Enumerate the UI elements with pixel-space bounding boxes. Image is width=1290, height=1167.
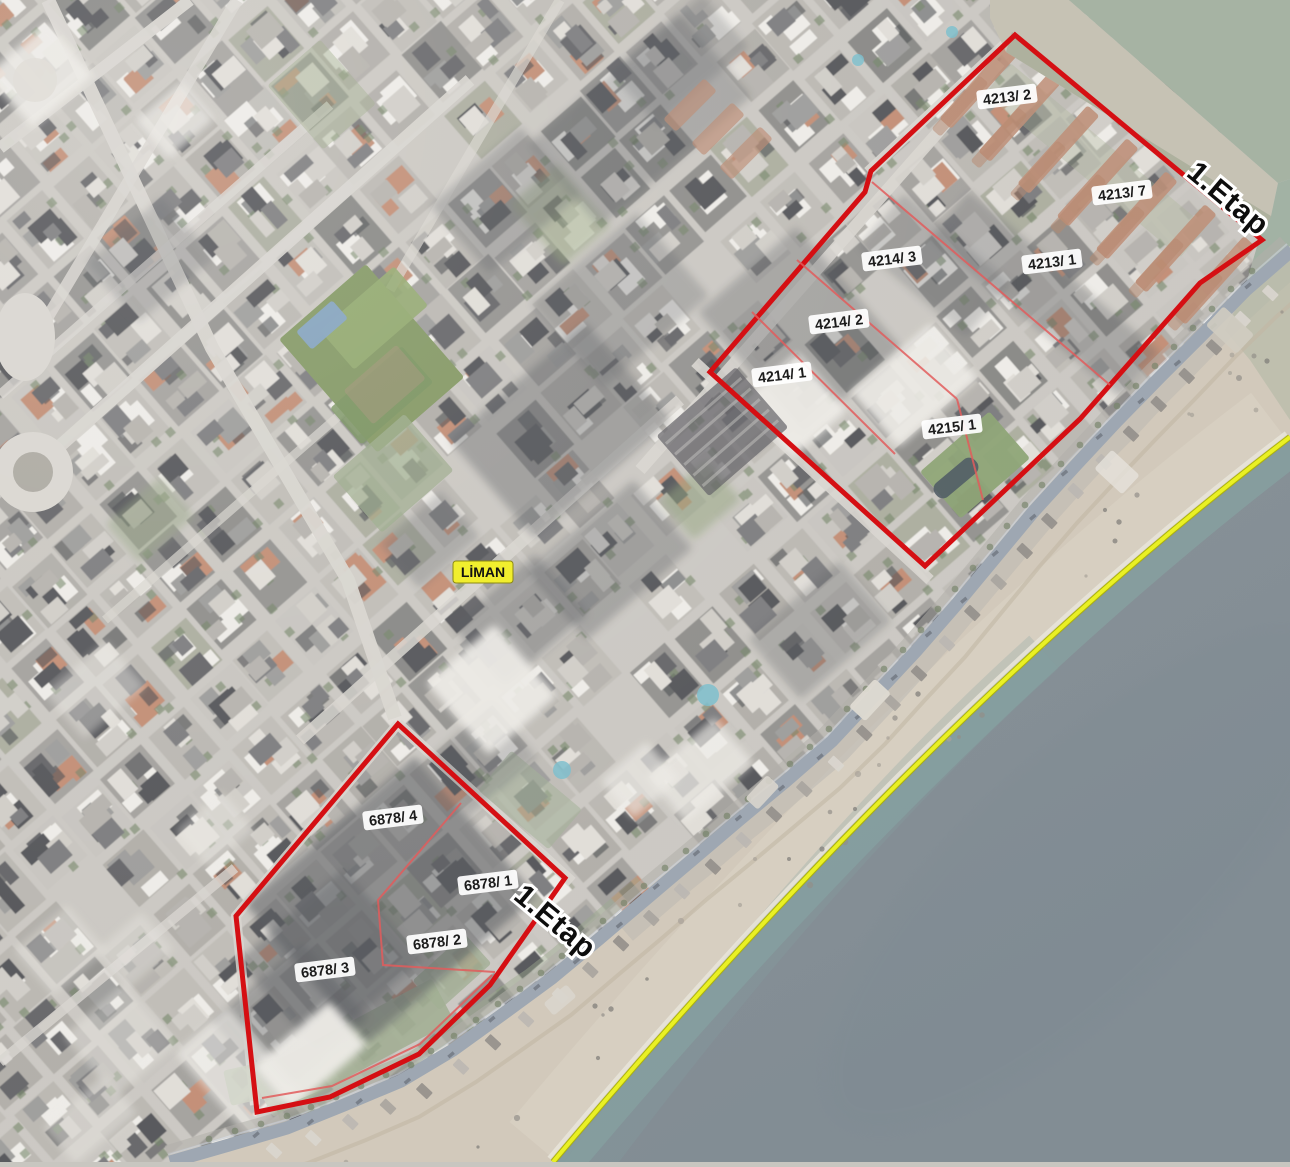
- svg-text:LİMAN: LİMAN: [461, 564, 505, 580]
